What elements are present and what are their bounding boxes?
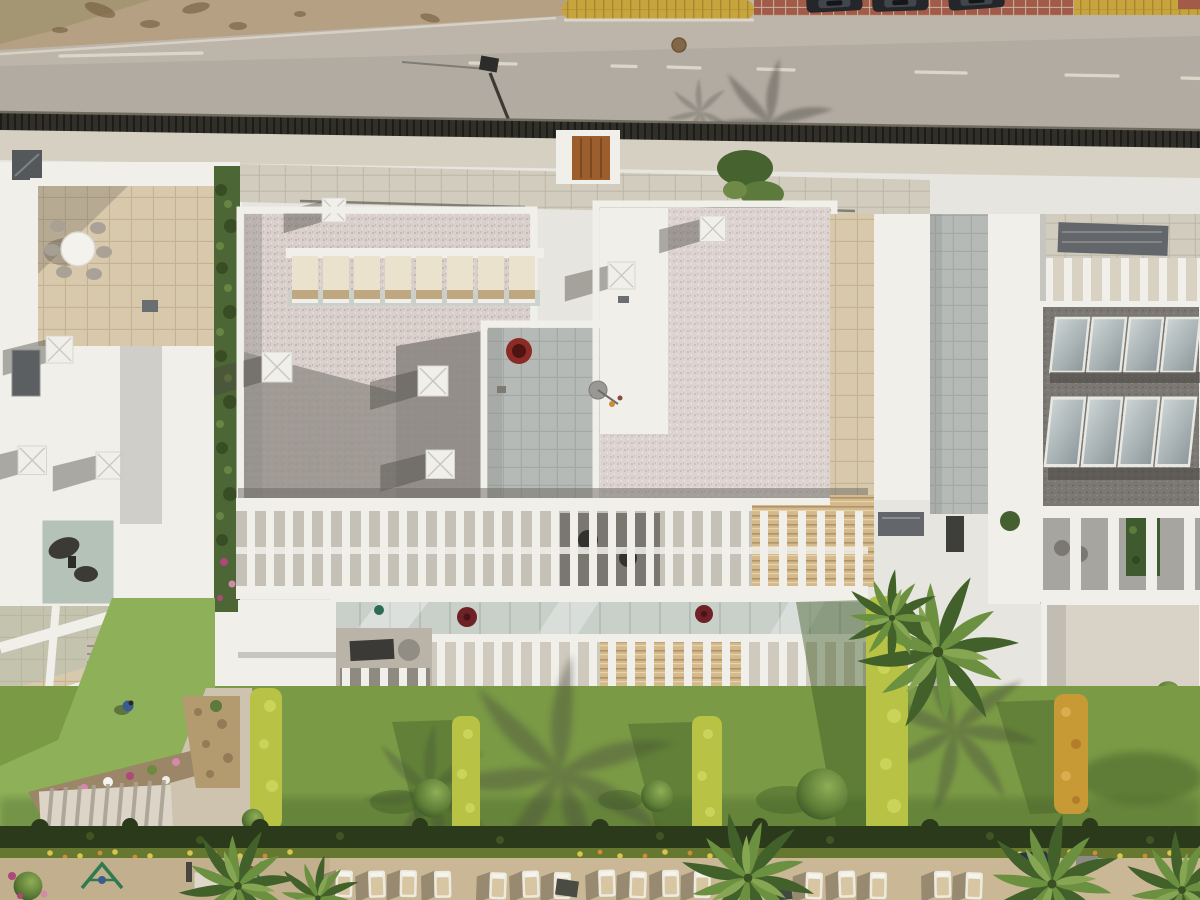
parked-car — [872, 0, 929, 12]
aerial-photo — [0, 0, 1200, 900]
orange-hedge — [1054, 694, 1088, 814]
bistro-table — [398, 639, 420, 661]
round-bush — [641, 780, 673, 812]
grey-awning — [1058, 222, 1169, 256]
roof-shade — [120, 346, 162, 524]
dark-window — [12, 350, 40, 396]
tan-tile-strip — [830, 214, 874, 500]
black-bench — [350, 639, 395, 661]
panel-row-shadow — [1050, 372, 1200, 383]
deck-mat — [555, 879, 579, 898]
north-pergola-slats — [1046, 258, 1200, 306]
dark-post — [186, 862, 192, 882]
equipment-box — [946, 516, 964, 552]
plant-pot — [374, 605, 384, 615]
screenshot-root — [0, 0, 1200, 900]
yellow-brick-median — [562, 0, 754, 19]
potted-plant — [1000, 511, 1020, 531]
pergola-rail-bottom — [236, 586, 868, 599]
round-bush — [413, 779, 451, 817]
wall-plant — [210, 700, 222, 712]
round-bush — [796, 768, 847, 819]
roof-hatch — [618, 296, 629, 303]
rooftop-pergola-band — [236, 488, 964, 599]
east-wall — [874, 214, 930, 500]
red-tile-corner — [1178, 0, 1200, 9]
grey-canopy — [878, 512, 924, 536]
round-table — [61, 232, 95, 266]
manhole-cover — [672, 38, 686, 52]
glass-balcony — [40, 518, 116, 606]
drain — [497, 386, 506, 393]
small-window — [142, 300, 158, 312]
entrance-gate — [556, 130, 620, 184]
panel-row-shadow — [1048, 468, 1200, 480]
terrace-chair — [1054, 540, 1070, 556]
pergola-rail-mid — [236, 547, 868, 554]
balcony-person — [68, 556, 76, 568]
white-roof-step — [600, 208, 668, 434]
